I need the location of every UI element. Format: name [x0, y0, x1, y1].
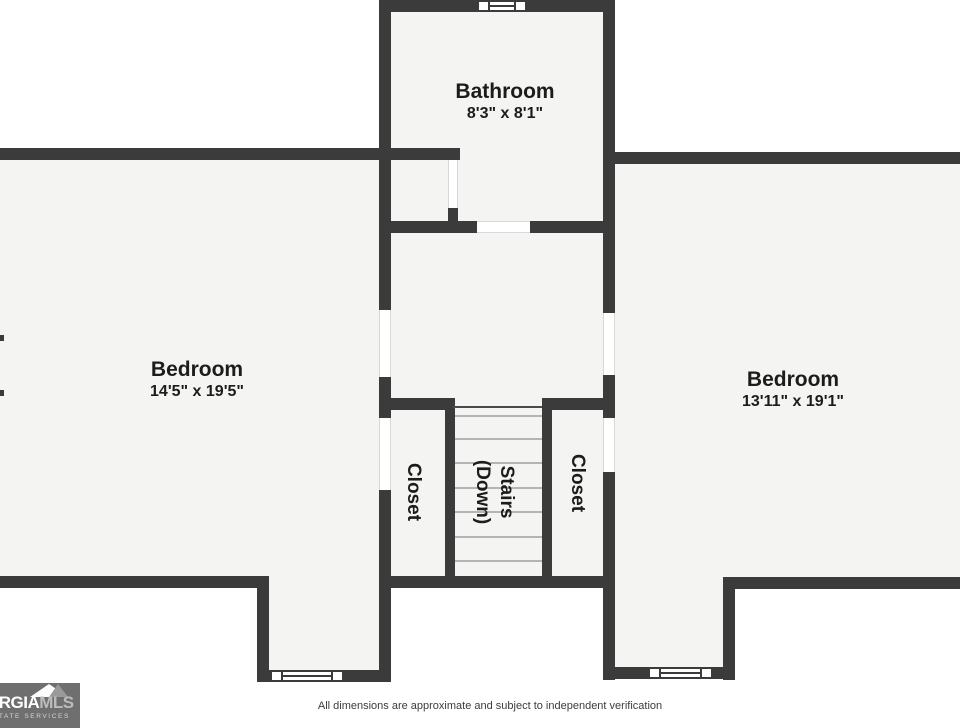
wall-bedroom-right-bottom [732, 577, 960, 589]
door-vestibule [448, 160, 458, 208]
mls-watermark-subtitle: ESTATE SERVICES [0, 713, 70, 720]
wall-bedroom-left-bottom [0, 576, 269, 588]
closet-left-label: Closet [401, 392, 425, 592]
door-bathroom [477, 221, 530, 233]
bedroom-left-dimensions: 14'5" x 19'5" [77, 381, 317, 403]
bedroom-right-label: Bedroom 13'11" x 19'1" [673, 368, 913, 413]
door-closet-right [603, 418, 615, 472]
window-pane-line [282, 675, 332, 677]
wall-west-upper [379, 0, 391, 310]
door-hall-to-bedroom-right [603, 313, 615, 375]
window-notch-left-edge-top [0, 335, 4, 341]
wall-bedroom-left-top [0, 148, 460, 160]
stairs-label-line1: Stairs [494, 392, 518, 592]
wall-bathroom-bottom-right [530, 221, 615, 233]
bedroom-left-label: Bedroom 14'5" x 19'5" [77, 358, 317, 403]
wall-bathroom-bottom-left [379, 221, 477, 233]
window-right-extension [648, 667, 713, 679]
bedroom-left-title: Bedroom [77, 358, 317, 381]
wall-right-extension-east [723, 577, 735, 680]
window-pane-line [660, 672, 701, 674]
wall-stairs-right [542, 398, 552, 588]
window-bathroom-top [477, 0, 527, 12]
wall-east-upper [603, 0, 615, 313]
bedroom-right-title: Bedroom [673, 368, 913, 391]
window-pane-line [489, 5, 515, 7]
bathroom-label: Bathroom 8'3" x 8'1" [385, 80, 625, 125]
bedroom-right-dimensions: 13'11" x 19'1" [673, 391, 913, 413]
bathroom-dimensions: 8'3" x 8'1" [385, 103, 625, 125]
door-closet-left [379, 418, 391, 490]
wall-vestibule-post [448, 208, 458, 221]
wall-stairs-left [445, 398, 455, 588]
window-notch-left-edge-bottom [0, 390, 4, 396]
closet-right-label: Closet [565, 383, 589, 583]
left-extension-floor [269, 576, 379, 671]
stairs-label-line2: (Down) [470, 392, 494, 592]
floor-plan: Bathroom 8'3" x 8'1" Bedroom 14'5" x 19'… [0, 0, 960, 720]
wall-left-extension-west [257, 576, 269, 682]
stairs-label: Stairs (Down) [470, 392, 518, 592]
bathroom-title: Bathroom [385, 80, 625, 103]
wall-bedroom-right-top [603, 152, 960, 164]
dimensions-disclaimer: All dimensions are approximate and subje… [0, 700, 960, 712]
door-hall-to-bedroom-left [379, 310, 391, 377]
window-left-extension [270, 670, 344, 682]
right-extension-floor [615, 577, 723, 667]
wall-east-mid [603, 375, 615, 418]
